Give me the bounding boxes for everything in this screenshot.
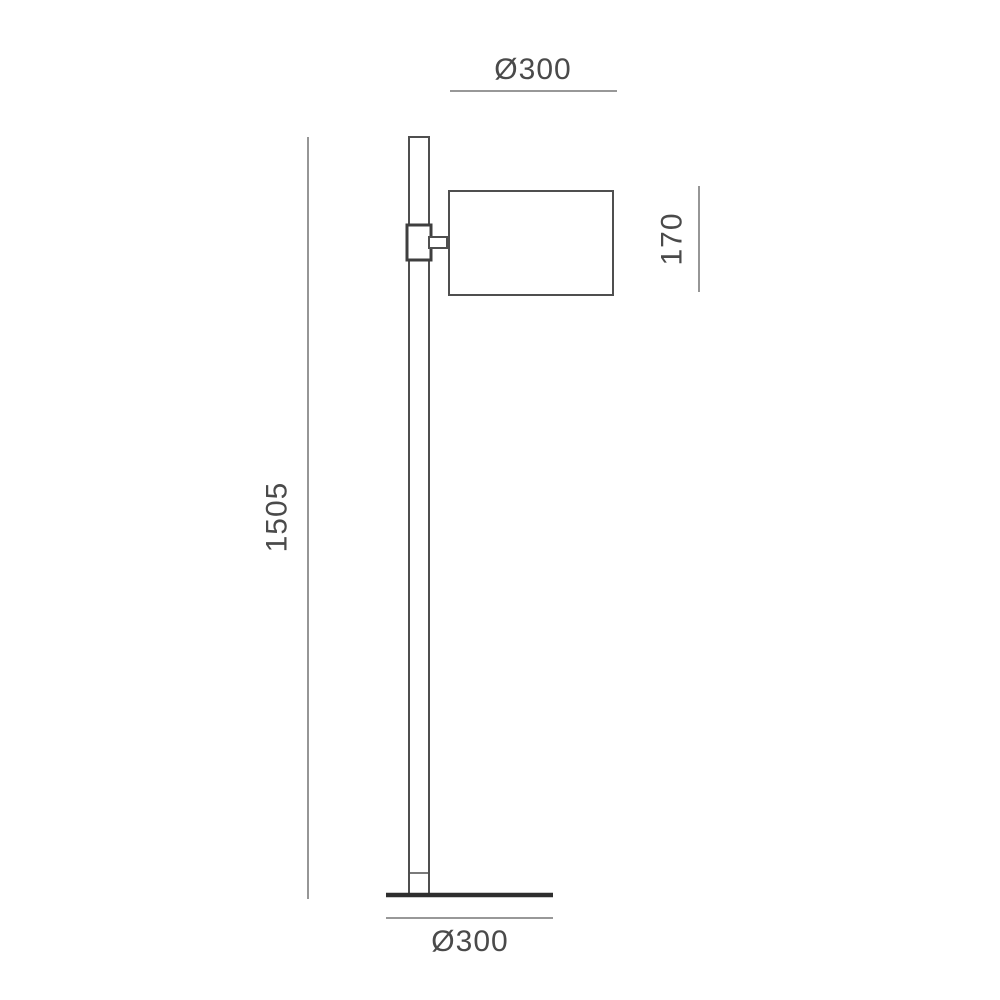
- lampshade-outline: [449, 191, 613, 295]
- shade-diameter-label: Ø300: [494, 53, 571, 86]
- floor-lamp-technical-drawing: Ø300 170 1505 Ø300: [0, 0, 1000, 1000]
- shade-height-label: 170: [656, 212, 689, 265]
- base-diameter-label: Ø300: [431, 925, 508, 958]
- drawing-canvas: Ø300 170 1505 Ø300: [0, 0, 1000, 1000]
- lamp-height-label: 1505: [261, 482, 294, 553]
- shade-mount-bracket: [407, 225, 431, 260]
- shade-connector-stub: [429, 237, 447, 248]
